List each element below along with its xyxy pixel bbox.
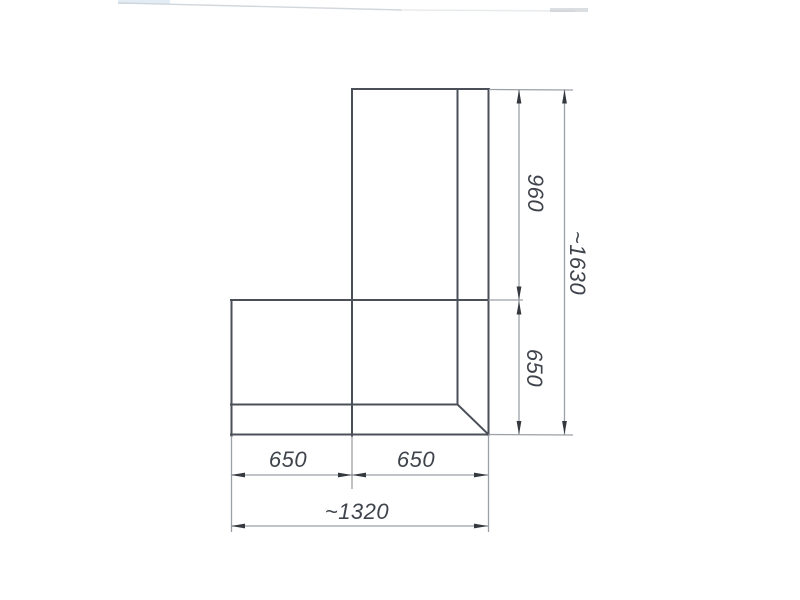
dimension-label-1320: ~1320 bbox=[325, 499, 390, 524]
arrow-right-inner-top bbox=[517, 90, 522, 104]
scan-artifact-smudge bbox=[550, 8, 588, 12]
arrow-right-inner-middle-up bbox=[517, 301, 522, 315]
inner-corner-diagonal bbox=[458, 405, 489, 435]
arrow-bottom-lower-left bbox=[231, 524, 245, 529]
arrow-bottom-upper-left bbox=[231, 473, 245, 478]
arrow-bottom-lower-right bbox=[474, 524, 488, 529]
arrow-right-inner-bottom bbox=[517, 421, 522, 435]
scan-artifact bbox=[118, 0, 588, 12]
dimension-label-1630: ~1630 bbox=[565, 231, 590, 296]
dimension-label-650-bottom-right: 650 bbox=[397, 447, 435, 472]
scanned-drawing-page: 960 650 ~1630 650 650 ~1320 bbox=[0, 0, 800, 600]
dimension-label-650-right: 650 bbox=[522, 349, 547, 387]
arrow-bottom-upper-split-right bbox=[338, 473, 352, 478]
arrow-right-outer-bottom bbox=[562, 421, 567, 435]
unit-outline bbox=[231, 89, 489, 436]
scan-artifact-line bbox=[118, 3, 402, 10]
arrow-bottom-upper-right bbox=[474, 473, 488, 478]
dimension-label-650-bottom-left: 650 bbox=[269, 447, 307, 472]
arrow-bottom-upper-split-left bbox=[352, 473, 366, 478]
extension-line-top bbox=[489, 90, 573, 91]
dimension-labels: 960 650 ~1630 650 650 ~1320 bbox=[269, 174, 590, 524]
extension-line-bottom-right bbox=[489, 435, 574, 436]
arrow-right-inner-middle-down bbox=[517, 287, 522, 301]
arrow-right-outer-top bbox=[562, 90, 567, 104]
scan-artifact-line-faint bbox=[402, 10, 575, 11]
dimension-drawing: 960 650 ~1630 650 650 ~1320 bbox=[0, 0, 800, 600]
dimension-label-960: 960 bbox=[523, 174, 548, 212]
